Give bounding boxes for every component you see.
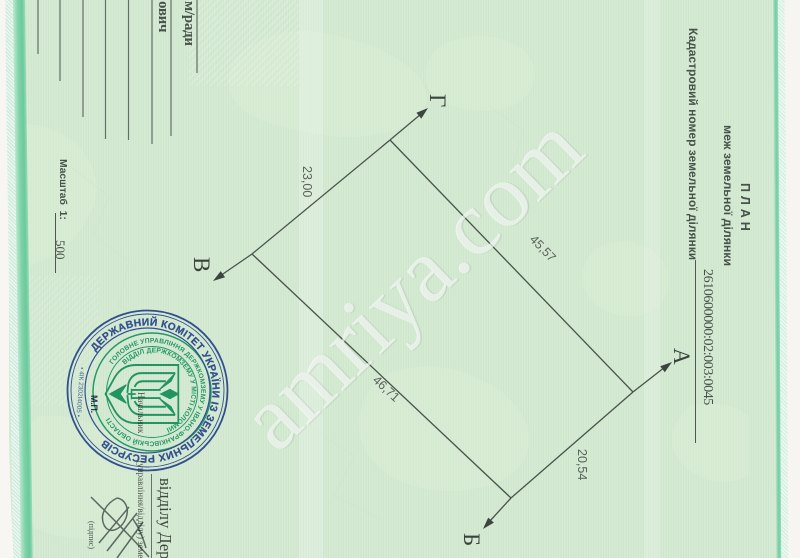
svg-text:• 4ІК 2302І4005 •: • 4ІК 2302І4005 •: [74, 367, 85, 418]
